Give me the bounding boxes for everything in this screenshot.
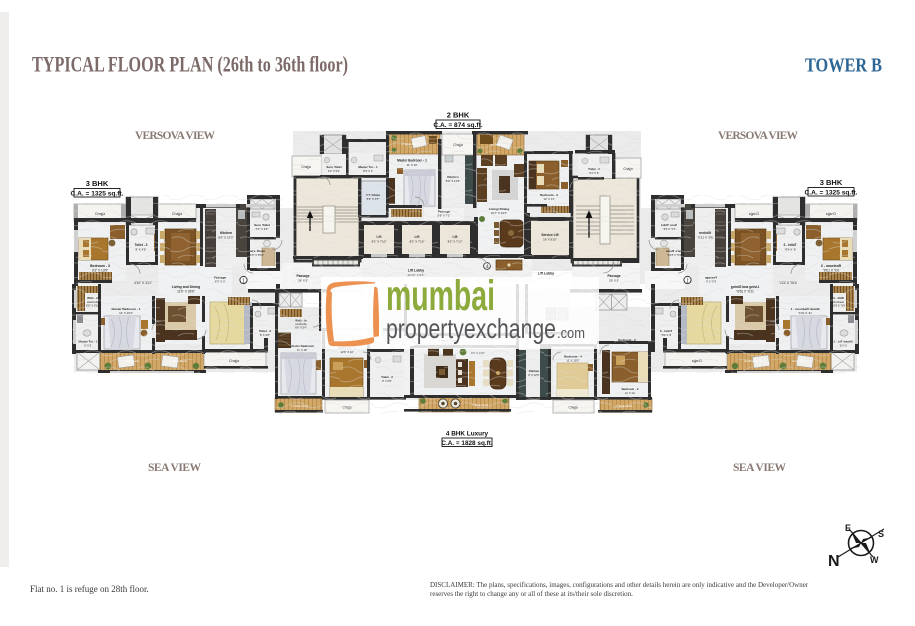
svg-text:3 BHK: 3 BHK	[86, 179, 109, 188]
svg-text:E: E	[845, 523, 851, 533]
svg-text:C.A. = 1325 sq.ft.: C.A. = 1325 sq.ft.	[71, 191, 124, 198]
svg-text:SEA VIEW: SEA VIEW	[733, 462, 787, 474]
svg-text:W: W	[870, 555, 879, 565]
svg-text:S: S	[878, 529, 884, 539]
svg-text:C.A. = 874 sq.ft.: C.A. = 874 sq.ft.	[433, 122, 482, 129]
svg-text:propertyexchange: propertyexchange	[386, 313, 556, 344]
svg-text:TYPICAL FLOOR PLAN (26th to 36: TYPICAL FLOOR PLAN (26th to 36th floor)	[32, 52, 348, 77]
svg-text:TOWER B: TOWER B	[805, 55, 882, 77]
svg-text:Flat no. 1 is refuge on 28th f: Flat no. 1 is refuge on 28th floor.	[30, 584, 149, 594]
svg-text:SEA VIEW: SEA VIEW	[148, 462, 202, 474]
svg-text:C.A. = 1828 sq.ft.: C.A. = 1828 sq.ft.	[441, 440, 493, 447]
svg-text:N: N	[828, 553, 840, 570]
svg-text:2 BHK: 2 BHK	[447, 111, 470, 120]
svg-text:3 BHK: 3 BHK	[820, 178, 843, 187]
svg-text:DISCLAIMER: The plans, specifi: DISCLAIMER: The plans, specifications, i…	[430, 581, 809, 589]
svg-text:C.A. = 1325 sq.ft.: C.A. = 1325 sq.ft.	[805, 190, 858, 197]
svg-text:reserves the right to change a: reserves the right to change any or all …	[430, 590, 633, 598]
svg-text:4 BHK Luxury: 4 BHK Luxury	[446, 431, 489, 438]
svg-text:.com: .com	[557, 325, 585, 342]
svg-text:VERSOVA VIEW: VERSOVA VIEW	[135, 130, 216, 142]
svg-text:VERSOVA VIEW: VERSOVA VIEW	[718, 130, 799, 142]
